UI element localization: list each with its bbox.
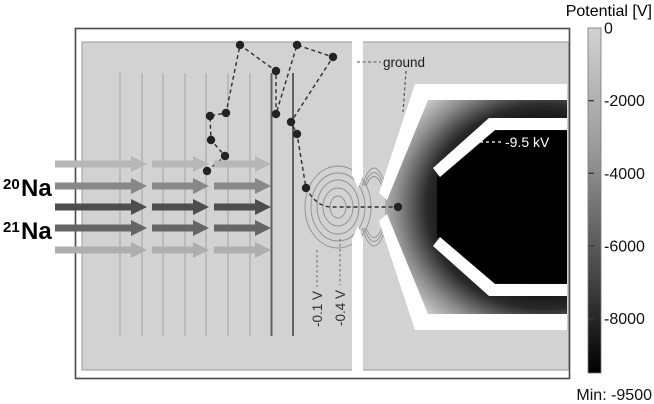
potential-figure: -0.1 V -0.4 V ground -9.5 kV 20 Na 21 Na… [0,0,654,404]
colorbar-tick-label: -4000 [604,166,645,183]
trajectory-dot [329,53,337,61]
beam-arrow-body [152,183,193,190]
trajectory-dot [293,130,301,138]
trajectory-dot [394,203,402,211]
beam-arrow-body [152,161,193,168]
trajectory-dot [272,67,280,75]
beam-arrow-body [55,204,131,211]
beam-arrow-body [55,225,131,232]
colorbar-title: Potential [V] [566,3,652,20]
beam-arrow-body [55,183,131,190]
trajectory-dot [293,41,301,49]
beam-arrow-body [152,247,193,254]
trajectory-dot [287,118,295,126]
ground-plate-upper [352,41,363,188]
trajectory-dot [222,109,230,117]
figure-canvas: -0.1 V -0.4 V ground -9.5 kV 20 Na 21 Na… [0,0,654,404]
beam-arrow-body [214,247,255,254]
beam-arrow-body [55,161,131,168]
beam-arrow-body [152,225,193,232]
isotope-label-20Na: 20 Na [3,175,52,202]
colorbar-tick-label: -2000 [604,93,645,110]
colorbar [588,28,601,373]
trajectory-dot [236,41,244,49]
ground-label: ground [383,55,425,70]
trajectory-dot [207,136,215,144]
beam-arrow-body [214,225,255,232]
trajectory-dot [302,184,310,192]
hv-voltage-label: -9.5 kV [505,134,550,150]
trajectory-dot [203,167,211,175]
equipotential-outer-label: -0.1 V [310,291,325,327]
colorbar-min-label: Min: -9500 [576,387,652,404]
isotope-label-21Na: 21 Na [3,218,52,245]
beam-arrow-body [214,204,255,211]
beam-arrow-body [214,183,255,190]
trajectory-dot [221,152,229,160]
trajectory-dot [272,110,280,118]
beam-arrow-body [55,247,131,254]
colorbar-tick-label: 0 [604,21,613,38]
colorbar-tick-label: -6000 [604,238,645,255]
trajectory-dot [206,112,214,120]
beam-arrow-body [152,204,193,211]
colorbar-tick-label: -8000 [604,311,645,328]
beam-arrow-body [214,161,255,168]
equipotential-inner-label: -0.4 V [333,290,348,326]
ground-plate-lower [352,226,363,371]
